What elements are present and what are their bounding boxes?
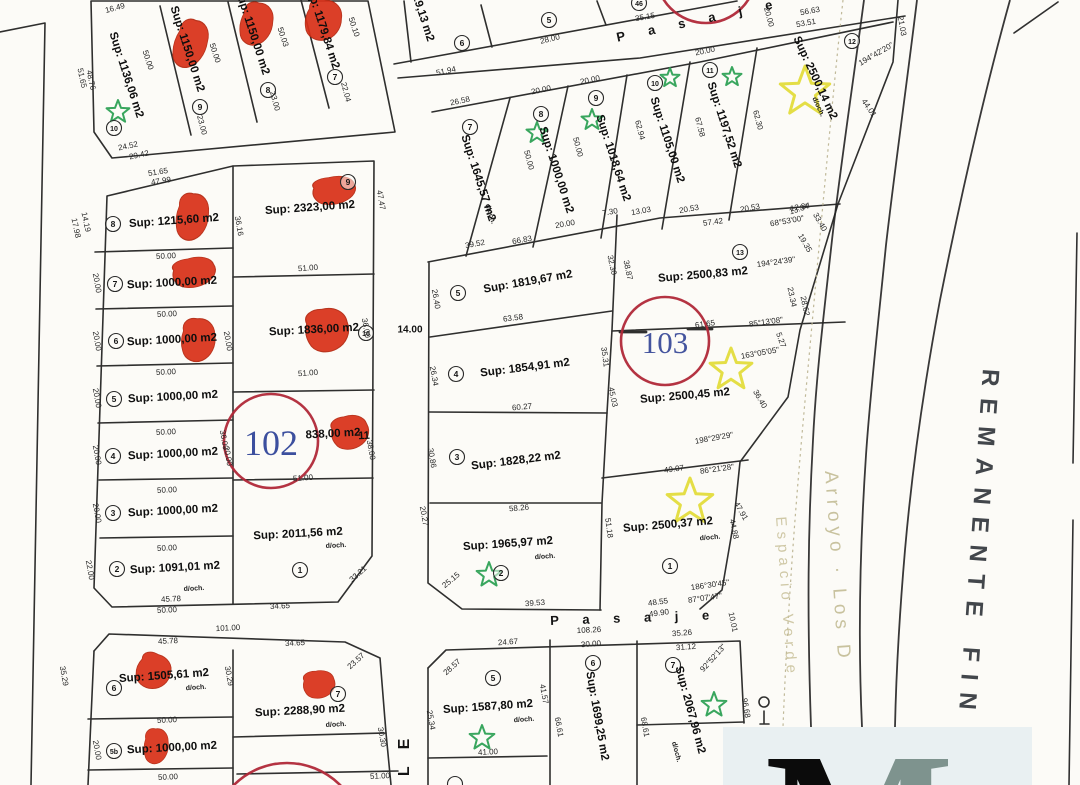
dimension-label: 33.21 bbox=[348, 564, 369, 584]
dimension-label: 41.00 bbox=[478, 747, 498, 757]
parcel-area-label: Sup: 1215,60 m2 bbox=[129, 212, 220, 230]
parcel-area-label: Sup: 1965,97 m2 bbox=[463, 535, 554, 553]
dimension-label: 51.00 bbox=[298, 263, 319, 273]
dimension-label: 194°24'39" bbox=[756, 255, 796, 269]
dimension-label: 50.00 bbox=[157, 543, 177, 553]
doch-label: d/och. bbox=[184, 585, 205, 593]
dimension-label: 10.01 bbox=[727, 611, 740, 632]
parcel-area-label: Sup: 1854,91 m2 bbox=[480, 357, 571, 380]
parcel-area-label: Sup: 1018,64 m2 bbox=[593, 113, 632, 202]
parcel-area-label: Sup: 1505,61 m2 bbox=[119, 667, 210, 685]
dimension-label: 50.00 bbox=[571, 136, 585, 158]
dimension-label: 49.07 bbox=[663, 463, 684, 475]
dimension-label: 26.58 bbox=[449, 95, 470, 108]
parcel-area-label: Sup: 1000,00 m2 bbox=[127, 740, 218, 757]
dimension-label: 20.00 bbox=[91, 387, 103, 408]
map-labels: 102103Sup: 1136,06 m2Sup: 1150,00 m2Sup:… bbox=[0, 0, 1080, 785]
parcel-area-label: Sup: 1150,00 m2 bbox=[167, 5, 206, 94]
dimension-label: 87°07'47" bbox=[687, 591, 722, 605]
dimension-label: 48.76 bbox=[85, 69, 98, 90]
dimension-label: 51.00 bbox=[298, 368, 319, 378]
parcel-area-label: Sup: 1836,00 m2 bbox=[269, 322, 360, 339]
dimension-label: 29.42 bbox=[128, 149, 149, 162]
dimension-label: 57.42 bbox=[702, 216, 723, 228]
survey-map: 10987654678910111287654329101543213165b7… bbox=[0, 0, 1080, 785]
dimension-label: 20.00 bbox=[222, 330, 234, 351]
dimension-label: 33.40 bbox=[811, 211, 829, 233]
dimension-label: 7.30 bbox=[602, 206, 619, 218]
dimension-label: 66.61 bbox=[553, 716, 565, 737]
dimension-label: 20.00 bbox=[530, 84, 551, 97]
dimension-label: 50.00 bbox=[208, 42, 223, 64]
remanente-label: REMANENTE FIN bbox=[951, 368, 1004, 722]
parcel-area-label: Sup: 1000,00 m2 bbox=[536, 125, 575, 214]
dimension-label: 68.61 bbox=[639, 716, 651, 737]
dimension-label: 23.00 bbox=[195, 114, 209, 136]
dimension-label: 50.00 bbox=[158, 772, 178, 782]
dimension-label: 23.34 bbox=[786, 286, 799, 307]
dimension-label: 58.26 bbox=[509, 503, 530, 514]
dimension-label: 30.30 bbox=[376, 726, 388, 747]
dimension-label: 19.35 bbox=[796, 232, 814, 254]
dimension-label: 67.58 bbox=[693, 116, 707, 138]
parcel-area-label: Sup: 1000,00 m2 bbox=[127, 275, 218, 292]
dimension-label: 50.00 bbox=[522, 149, 536, 171]
zone-number-103: 103 bbox=[642, 325, 689, 361]
dimension-label: 44.01 bbox=[860, 97, 879, 119]
dimension-label: 61.65 bbox=[694, 318, 715, 330]
doch-label: d/och. bbox=[534, 553, 555, 561]
parcel-area-label: Sup: 2067,96 m2 bbox=[673, 665, 708, 755]
dimension-label: 38.87 bbox=[622, 259, 635, 280]
dimension-label: 20.00 bbox=[91, 502, 103, 523]
dimension-label: 28.00 bbox=[539, 32, 561, 46]
parcel-area-label: Sup: 2288,90 m2 bbox=[255, 703, 346, 720]
dimension-label: 20.00 bbox=[91, 444, 103, 465]
zone-number-102: 102 bbox=[244, 422, 298, 464]
parcel-area-label: Sup: 1819,67 m2 bbox=[483, 268, 574, 295]
dimension-label: 34.65 bbox=[270, 601, 290, 611]
dimension-label: 96.68 bbox=[740, 697, 752, 718]
dimension-label: 50.00 bbox=[157, 485, 177, 495]
dimension-label: 34.65 bbox=[285, 638, 305, 648]
dimension-label: 14.00 bbox=[397, 325, 422, 336]
dimension-label: 39.52 bbox=[464, 238, 485, 250]
dimension-label: 86°21'28" bbox=[699, 462, 734, 476]
dimension-label: 31.12 bbox=[676, 642, 697, 652]
parcel-area-label: Sup: 1587,80 m2 bbox=[443, 698, 534, 716]
parcel-area-label: 2519,13 m2 bbox=[406, 0, 436, 43]
dimension-label: 39.53 bbox=[525, 598, 546, 608]
doch-label: d/och. bbox=[326, 721, 347, 729]
dimension-label: 36.40 bbox=[751, 388, 769, 410]
dimension-label: 63.58 bbox=[503, 312, 524, 323]
dimension-label: 20.53 bbox=[739, 202, 760, 214]
parcel-area-label: Sup: 1000,00 m2 bbox=[127, 332, 218, 349]
dimension-label: 24.67 bbox=[498, 637, 519, 647]
dimension-label: 20.53 bbox=[678, 203, 699, 215]
dimension-label: 50.00 bbox=[156, 367, 176, 377]
dimension-label: 23.00 bbox=[268, 90, 282, 112]
doch-label: d/och. bbox=[670, 741, 682, 763]
dimension-label: 85°13'08" bbox=[748, 315, 783, 329]
doch-label: d/och. bbox=[699, 534, 720, 543]
dimension-label: 21.03 bbox=[896, 15, 908, 36]
dimension-label: 32.30 bbox=[606, 254, 619, 275]
dimension-label: 194°42'20" bbox=[857, 40, 895, 67]
dimension-label: 50.00 bbox=[157, 605, 177, 615]
dimension-label: 35.31 bbox=[599, 346, 611, 367]
dimension-label: 35.29 bbox=[58, 665, 70, 686]
dimension-label: 101.00 bbox=[216, 623, 241, 633]
dimension-label: 50.00 bbox=[156, 251, 176, 261]
dimension-label: 45.78 bbox=[158, 636, 178, 646]
dimension-label: 45.03 bbox=[607, 386, 620, 407]
dimension-label: 16.49 bbox=[104, 1, 126, 15]
dimension-label: 20.27 bbox=[418, 505, 430, 526]
parcel-area-label: Sup: 1000,00 m2 bbox=[128, 503, 219, 520]
dimension-label: 20.00 bbox=[694, 45, 715, 58]
dimension-label: 62.94 bbox=[633, 119, 647, 141]
dimension-label: 38.00 bbox=[365, 439, 377, 460]
parcel-area-label: Sup: 1105,00 m2 bbox=[647, 96, 686, 185]
dimension-label: 51.18 bbox=[603, 517, 615, 538]
dimension-label: 36.00 bbox=[360, 317, 372, 338]
dimension-label: 48.55 bbox=[647, 596, 668, 608]
dimension-label: 163°05'05" bbox=[740, 345, 780, 361]
parcel-area-label: Sup: 2323,00 m2 bbox=[265, 199, 356, 217]
dimension-label: 30.00 bbox=[581, 639, 602, 649]
dimension-label: 26.34 bbox=[428, 365, 440, 386]
arroyo-label: Arroyo · Los D bbox=[819, 470, 854, 664]
dimension-label: 20.00 bbox=[91, 739, 103, 760]
dimension-label: 198°29'29" bbox=[694, 430, 734, 446]
dimension-label: 12.34 bbox=[789, 201, 810, 213]
dimension-label: 44.88 bbox=[728, 518, 741, 539]
parcel-area-label: Sup: 2500,37 m2 bbox=[623, 515, 714, 535]
dimension-label: 22.00 bbox=[84, 559, 96, 580]
doch-label: d/och. bbox=[513, 716, 534, 724]
dimension-label: 28.62 bbox=[799, 295, 812, 316]
espacio-label: Espacio Verde bbox=[772, 516, 800, 679]
parcel-area-label: Sup: 1150,00 m2 bbox=[232, 0, 271, 76]
dimension-label: 56.63 bbox=[799, 5, 820, 17]
dimension-label: 53.51 bbox=[795, 17, 816, 29]
dimension-label: 13.03 bbox=[630, 205, 651, 217]
parcel-area-label: Sup: 1000,00 m2 bbox=[128, 446, 219, 463]
dimension-label: 50.00 bbox=[157, 715, 177, 725]
dimension-label: 36.00 bbox=[218, 429, 230, 450]
dimension-label: 20.00 bbox=[579, 74, 600, 87]
dimension-label: 25.34 bbox=[425, 709, 437, 730]
dimension-label: 47.47 bbox=[375, 189, 387, 210]
parcel-area-label: Sup: 2011,56 m2 bbox=[253, 526, 343, 543]
parcel-area-label: 838,00 m2 bbox=[305, 427, 361, 442]
dimension-label: 20.00 bbox=[91, 272, 103, 293]
dimension-label: 68°53'00" bbox=[769, 214, 804, 229]
dimension-label: 50.03 bbox=[276, 26, 291, 48]
parcel-area-label: Sup: 2500,83 m2 bbox=[658, 265, 749, 285]
dimension-label: 62.30 bbox=[751, 109, 765, 131]
dimension-label: 50.00 bbox=[141, 49, 156, 71]
doch-label: d/och. bbox=[326, 542, 347, 550]
dimension-label: 45.78 bbox=[161, 594, 181, 604]
parcel-area-label: Sup: 1197,52 m2 bbox=[704, 81, 743, 170]
watermark: M M bbox=[723, 727, 1032, 785]
dimension-label: 186°30'45" bbox=[690, 578, 730, 592]
dimension-label: 51.00 bbox=[370, 771, 390, 781]
dimension-label: 20.00 bbox=[554, 218, 575, 230]
dimension-label: 22.04 bbox=[339, 81, 353, 103]
dimension-label: 25.15 bbox=[440, 570, 461, 590]
dimension-label: 30.29 bbox=[223, 665, 235, 686]
dimension-label: 35.26 bbox=[672, 628, 693, 638]
dimension-label: 50.00 bbox=[156, 427, 176, 437]
dimension-label: 23.57 bbox=[346, 651, 367, 671]
parcel-area-label: Sup: 1000,00 m2 bbox=[128, 389, 219, 406]
dimension-label: 50.10 bbox=[347, 16, 362, 38]
parcel-area-label: Sup: 1179,84 m2 bbox=[302, 0, 341, 70]
pasaje-bottom-label: P a s a j e bbox=[550, 607, 719, 628]
dimension-label: 36.16 bbox=[233, 215, 245, 236]
parcel-area-label: Sup: 2500,45 m2 bbox=[640, 386, 731, 406]
dimension-label: 50.00 bbox=[157, 309, 177, 319]
dimension-label: 30.86 bbox=[426, 447, 438, 468]
dimension-label: 66.83 bbox=[511, 234, 532, 246]
dimension-label: 41.57 bbox=[538, 683, 550, 704]
dimension-label: 51.00 bbox=[293, 473, 314, 483]
dimension-label: 14.19 bbox=[80, 211, 93, 232]
dimension-label: 92°52'13" bbox=[698, 642, 728, 673]
dimension-label: 26.40 bbox=[430, 288, 442, 309]
dimension-label: 47.99 bbox=[150, 175, 171, 187]
calle-label: CALLE bbox=[396, 722, 414, 785]
dimension-label: 20.00 bbox=[91, 330, 103, 351]
dimension-label: 60.27 bbox=[512, 402, 533, 413]
parcel-area-label: Sup: 1699,25 m2 bbox=[583, 671, 610, 762]
parcel-area-label: Sup: 1828,22 m2 bbox=[471, 450, 562, 473]
parcel-area-label: Sup: 1091,01 m2 bbox=[130, 560, 221, 577]
parcel-area-label: Sup: 1136,06 m2 bbox=[106, 31, 145, 120]
dimension-label: 28.57 bbox=[442, 657, 463, 677]
dimension-label: 51.94 bbox=[435, 65, 456, 78]
doch-label: d/och. bbox=[185, 684, 206, 692]
